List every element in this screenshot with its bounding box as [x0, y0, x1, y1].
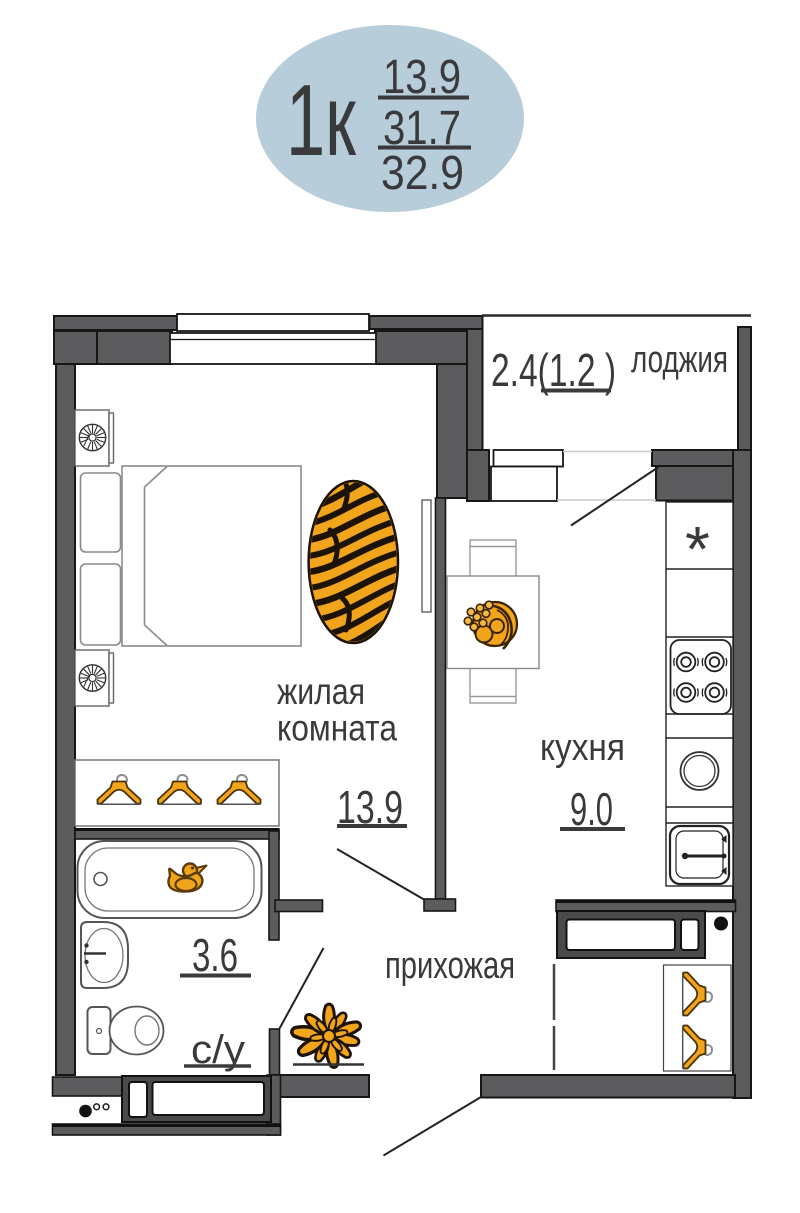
- svg-text:комната: комната: [277, 708, 397, 749]
- svg-text:жилая: жилая: [277, 671, 365, 712]
- svg-text:лоджия: лоджия: [631, 339, 728, 381]
- svg-text:прихожая: прихожая: [385, 945, 515, 987]
- svg-text:32.9: 32.9: [381, 147, 464, 200]
- svg-text:1к: 1к: [286, 65, 357, 177]
- svg-text:кухня: кухня: [540, 727, 625, 769]
- svg-text:*: *: [685, 513, 710, 585]
- svg-text:с/у: с/у: [191, 1028, 245, 1072]
- svg-text:2.4(1.2 ): 2.4(1.2 ): [491, 344, 616, 396]
- svg-text:3.6: 3.6: [192, 929, 238, 981]
